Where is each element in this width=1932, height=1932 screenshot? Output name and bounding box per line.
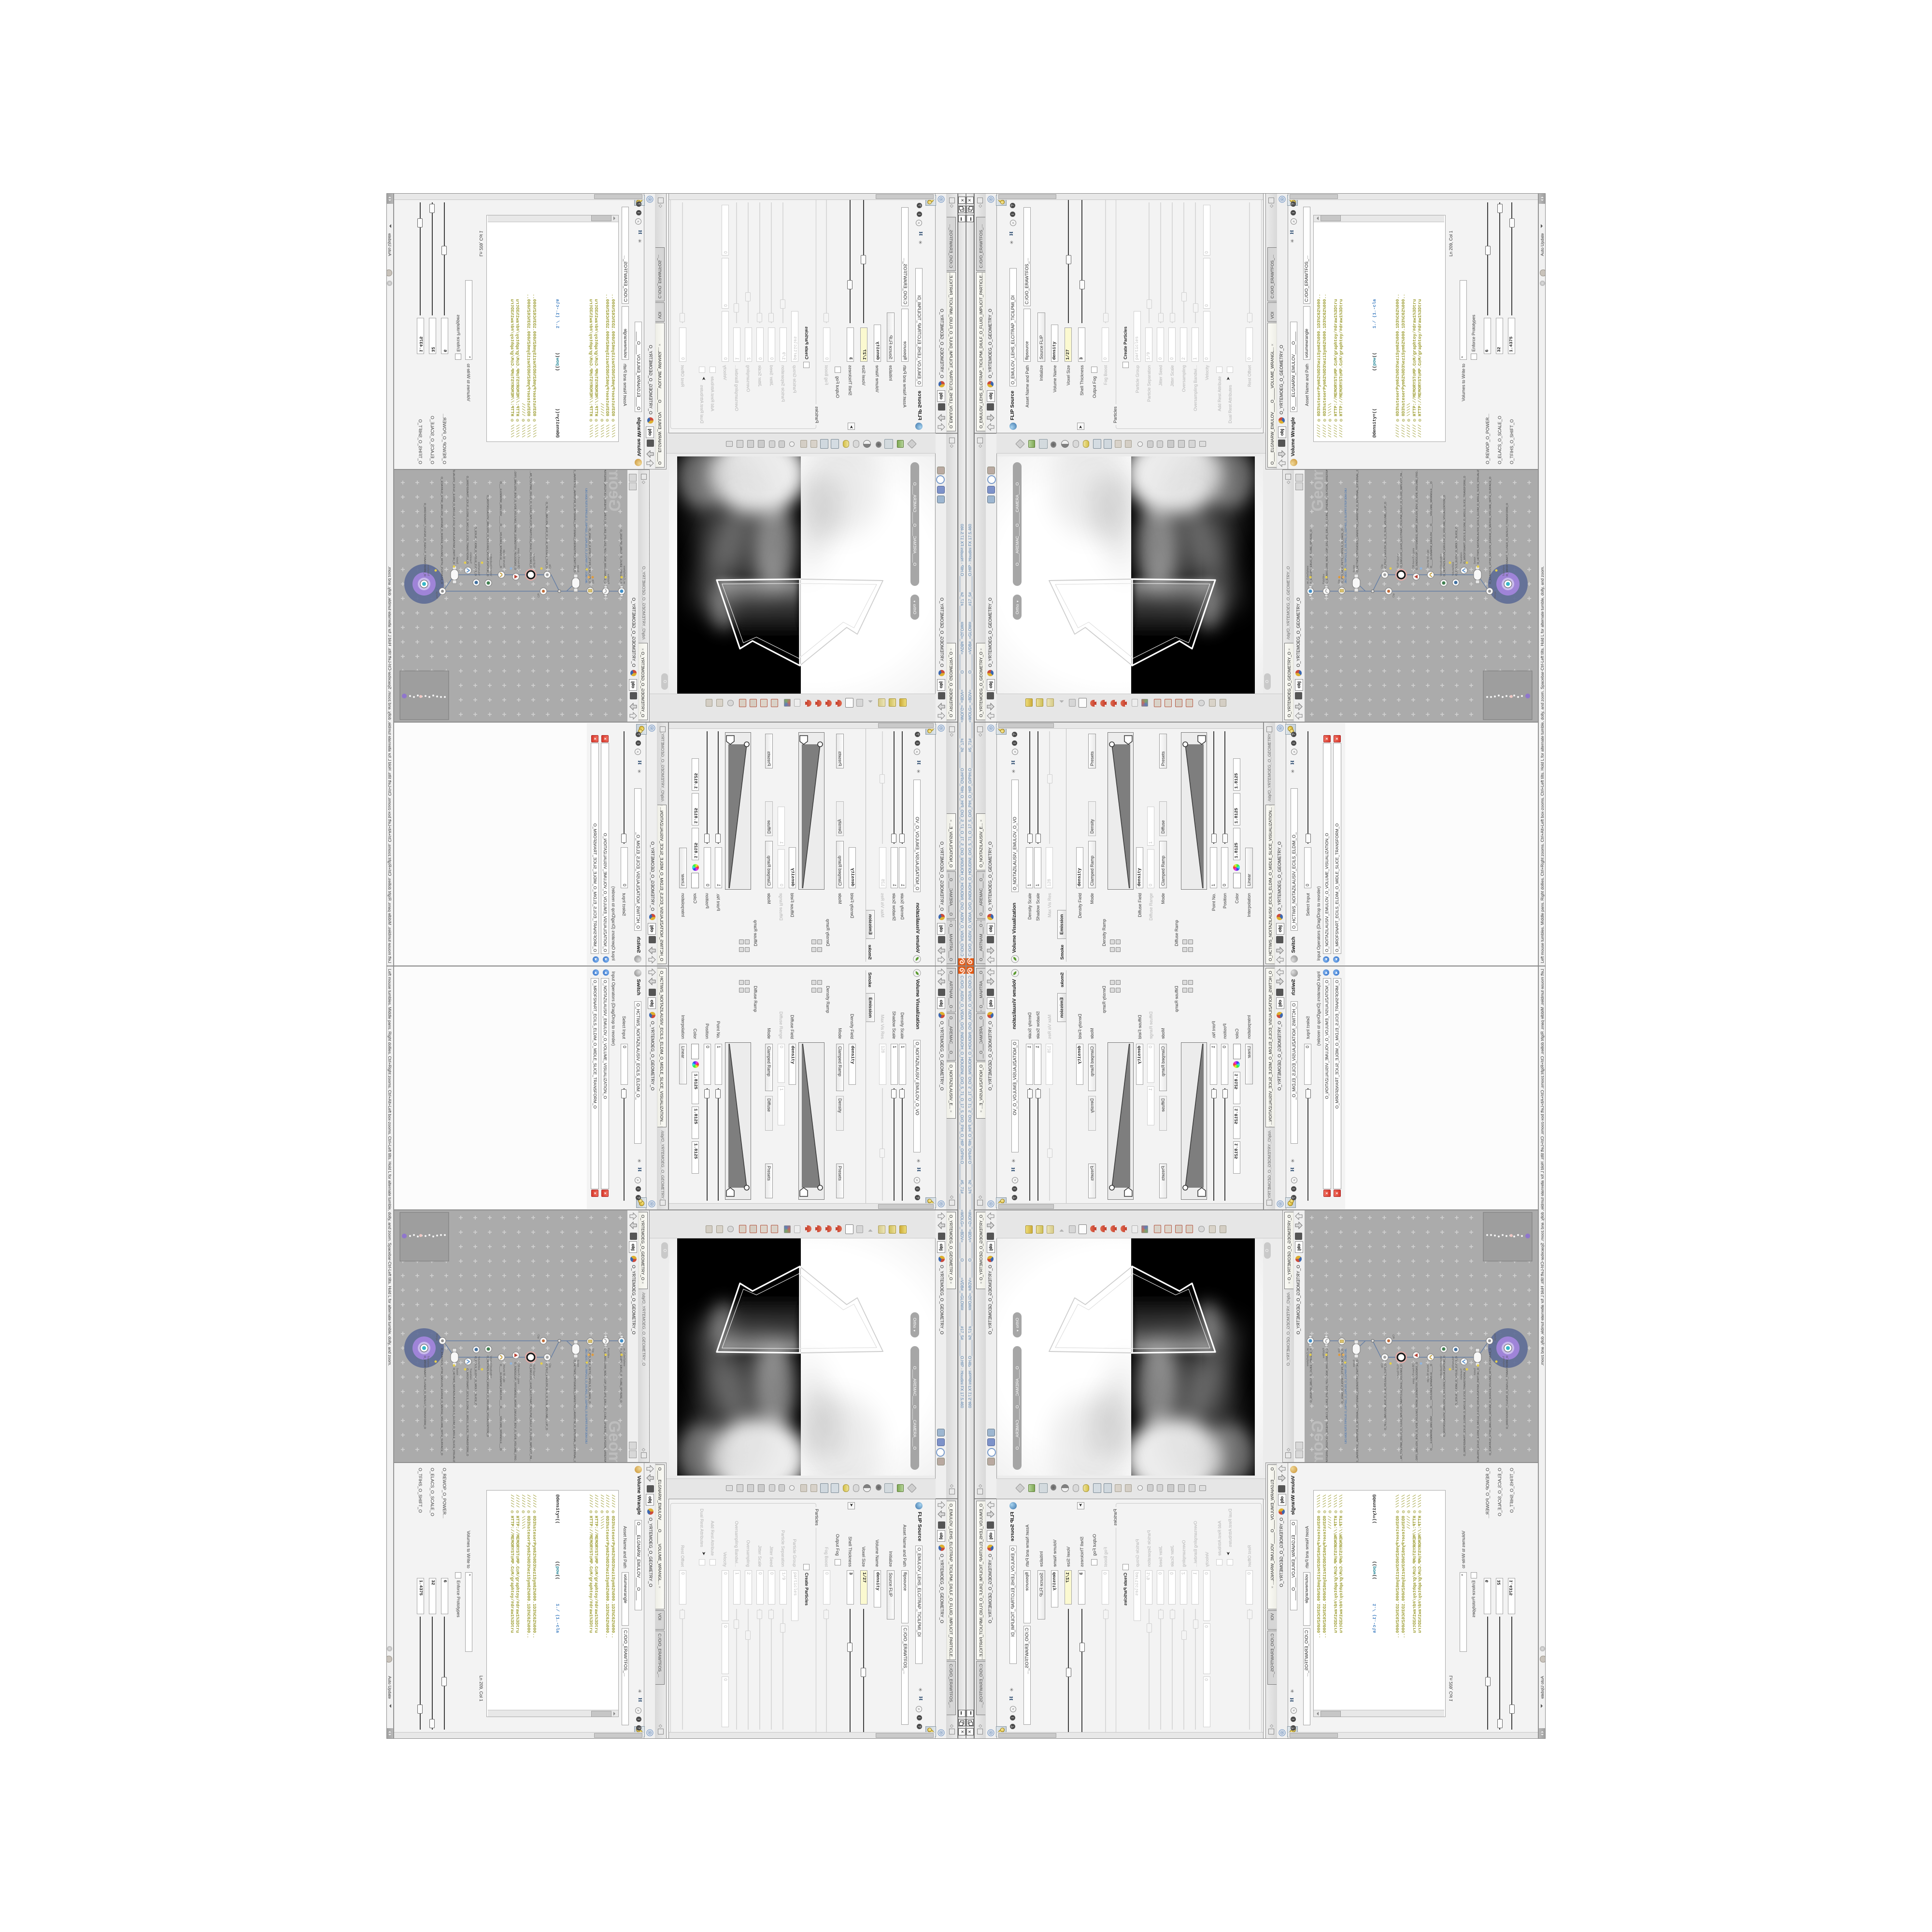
svg-text:an_CubeSphere: an_CubeSphere bbox=[623, 1348, 625, 1366]
svg-text:Volume Wrangle: Volume Wrangle bbox=[1427, 550, 1430, 568]
svg-text:O_EMARFERIW_NOGYLOP_EREHPS_EBU: O_EMARFERIW_NOGYLOP_EREHPS_EBUC_O_CUBE_S… bbox=[603, 470, 606, 584]
svg-text:an_CubeSphere: an_CubeSphere bbox=[1307, 566, 1309, 584]
svg-text:Transform: Transform bbox=[1460, 553, 1463, 564]
svg-text:FLIP Source: FLIP Source bbox=[532, 554, 535, 568]
svg-text:O_MROFSNART_ECILS_ELDIM_O_MIDL: O_MROFSNART_ECILS_ELDIM_O_MIDLE_SLICE_TR… bbox=[1463, 1368, 1466, 1456]
svg-text:FLIP Source: FLIP Source bbox=[1397, 554, 1400, 568]
svg-text:O_MROFSNART_ECILS_ELDIM_O_MIDL: O_MROFSNART_ECILS_ELDIM_O_MIDLE_SLICE_TR… bbox=[466, 1368, 469, 1456]
svg-text:O_MROFSNART_TLUSER_O_RESULT_TR: O_MROFSNART_TLUSER_O_RESULT_TRANSFORM_O bbox=[1506, 1356, 1509, 1429]
svg-text:Transform: Transform bbox=[426, 565, 429, 576]
svg-text:O_HCTIWS_NOITAZILAUSIV_ECILS_E: O_HCTIWS_NOITAZILAUSIV_ECILS_ELDIM_O_MID… bbox=[1477, 1368, 1480, 1462]
svg-text:O_MROFSNART_TLUSER_O_RESULT_TR: O_MROFSNART_TLUSER_O_RESULT_TRANSFORM_O bbox=[423, 1356, 426, 1429]
svg-text:O_MROFSNART_TLUSER_O_RESULT_TR: O_MROFSNART_TLUSER_O_RESULT_TRANSFORM_O bbox=[1506, 503, 1509, 576]
svg-text:O____ELGNARW_EMULOV____O_____V: O____ELGNARW_EMULOV____O_____VOLUME_WRAN… bbox=[499, 481, 502, 568]
svg-text:Merge: Merge bbox=[435, 1334, 438, 1341]
svg-text:O_EMARFERIW_NOGYLOP_EREHPS_EBU: O_EMARFERIW_NOGYLOP_EREHPS_EBUC_O_CUBE_S… bbox=[1326, 470, 1329, 584]
svg-text:O_HCTIWS_YRTEMOEG_LANRETXE_LAN: O_HCTIWS_YRTEMOEG_LANRETXE_LANRETNI_O_IN… bbox=[573, 1360, 576, 1462]
svg-text:O____ELGNARW_EMULOV____O_____V: O____ELGNARW_EMULOV____O_____VOLUME_WRAN… bbox=[1430, 1364, 1433, 1451]
svg-text:an_CubeSphere: an_CubeSphere bbox=[1307, 1348, 1309, 1366]
svg-text:File: File bbox=[591, 580, 594, 583]
svg-text:O_NOITAZILAUSIV_EMULOV_O_VOLUM: O_NOITAZILAUSIV_EMULOV_O_VOLUME_VISUALIZ… bbox=[1443, 495, 1446, 576]
svg-text:O_HCTIWS_YRTEMOEG_LANRETXE_LAN: O_HCTIWS_YRTEMOEG_LANRETXE_LANRETNI_O_IN… bbox=[1356, 1360, 1359, 1462]
svg-text:O_JBO_MD3_PETS_TRPOLS_O_DAOL_O: O_JBO_MD3_PETS_TRPOLS_O_DAOL_O bbox=[1341, 528, 1344, 583]
svg-text:O_EMULOV_LEHS_ELCITRAP_TICILPM: O_EMULOV_LEHS_ELCITRAP_TICILPMI_DIULF_O_… bbox=[1400, 1364, 1403, 1462]
svg-text:O____ELGNARW_EMULOV____O_____V: O____ELGNARW_EMULOV____O_____VOLUME_WRAN… bbox=[1430, 481, 1433, 568]
svg-text:Merge: Merge bbox=[435, 591, 438, 598]
svg-text:Transform: Transform bbox=[1503, 565, 1506, 576]
svg-text:O_EMULOV_LEHS_ELCITRAP_TICILPM: O_EMULOV_LEHS_ELCITRAP_TICILPMI_DIULF_O_… bbox=[1400, 470, 1403, 568]
svg-text:Clip: Clip bbox=[537, 593, 540, 597]
svg-text:O_PILC_EMULOV_BUS_O_SUB_VOLUME: O_PILC_EMULOV_BUS_O_SUB_VOLUME_CLIP_O bbox=[545, 502, 548, 568]
svg-text:O_EMARFERIW_NOGYLOP_EREHPS_EBU: O_EMARFERIW_NOGYLOP_EREHPS_EBUC_O_CUBE_S… bbox=[1326, 1348, 1329, 1462]
svg-text:O_EREHPS_EBUC_O_CUBE_SPHERE_O: O_EREHPS_EBUC_O_CUBE_SPHERE_O bbox=[619, 529, 622, 584]
svg-text:VolumeSlice: VolumeSlice bbox=[477, 1356, 480, 1370]
svg-text:O_PILC_EMULOV_BUS_O_SUB_VOLUME: O_PILC_EMULOV_BUS_O_SUB_VOLUME_CLIP_O bbox=[545, 1364, 548, 1430]
svg-text:Transform: Transform bbox=[1460, 1368, 1463, 1379]
svg-text:Switch: Switch bbox=[455, 557, 458, 564]
svg-text:File: File bbox=[1338, 580, 1341, 583]
svg-text:Switch: Switch bbox=[576, 565, 579, 572]
svg-text:Transform: Transform bbox=[426, 1356, 429, 1367]
svg-text:PolyWire: PolyWire bbox=[607, 574, 610, 584]
svg-text:O_PILC_EMULOV_BUS_O_SUB_VOLUME: O_PILC_EMULOV_BUS_O_SUB_VOLUME_CLIP_O bbox=[1384, 1364, 1387, 1430]
svg-text:O____ELGNARW_EMULOV____O_____V: O____ELGNARW_EMULOV____O_____VOLUME_WRAN… bbox=[499, 1364, 502, 1451]
svg-text:Merge: Merge bbox=[1494, 1334, 1497, 1341]
svg-text:O_SNOGILOP_YRTEMOEG_MORF_EMULO: O_SNOGILOP_YRTEMOEG_MORF_EMULOV_BDV_O_VD… bbox=[513, 470, 516, 570]
svg-text:VolumeVisualization: VolumeVisualization bbox=[1440, 1356, 1443, 1378]
svg-text:VolumeSlice: VolumeSlice bbox=[1452, 1356, 1455, 1370]
svg-text:Switch: Switch bbox=[1474, 1368, 1477, 1375]
svg-text:O_MROFSNART_ECILS_ELDIM_O_MIDL: O_MROFSNART_ECILS_ELDIM_O_MIDLE_SLICE_TR… bbox=[1463, 476, 1466, 564]
svg-text:Clip: Clip bbox=[548, 1364, 551, 1368]
svg-text:VolumeVisualization: VolumeVisualization bbox=[1440, 554, 1443, 576]
svg-text:O_ECAFRUS_HTIW_EMULOV_EGREM_O_: O_ECAFRUS_HTIW_EMULOV_EGREM_O_MERGE_VOLU… bbox=[440, 1348, 443, 1455]
svg-text:Clip: Clip bbox=[1392, 1335, 1395, 1339]
svg-text:Switch: Switch bbox=[1353, 1360, 1356, 1367]
svg-text:O_HCTIWS_YRTEMOEG_LANRETXE_LAN: O_HCTIWS_YRTEMOEG_LANRETXE_LANRETNI_O_IN… bbox=[1356, 470, 1359, 572]
svg-text:Volume Wrangle: Volume Wrangle bbox=[1427, 1364, 1430, 1382]
svg-text:O_HCTIWS_NOITAZILAUSIV_ECILS_E: O_HCTIWS_NOITAZILAUSIV_ECILS_ELDIM_O_MID… bbox=[1477, 470, 1480, 564]
svg-text:O_SNOGILOP_YRTEMOEG_MORF_EMULO: O_SNOGILOP_YRTEMOEG_MORF_EMULOV_BDV_O_VD… bbox=[1416, 1362, 1419, 1462]
svg-text:Clip: Clip bbox=[1392, 593, 1395, 597]
svg-text:O_HCTIWS_NOITAZILAUSIV_ECILS_E: O_HCTIWS_NOITAZILAUSIV_ECILS_ELDIM_O_MID… bbox=[452, 470, 455, 564]
svg-text:O_EREHPS_EBUC_O_CUBE_SPHERE_O: O_EREHPS_EBUC_O_CUBE_SPHERE_O bbox=[1310, 529, 1313, 584]
svg-text:O_MROFSNART_TLUSER_O_RESULT_TR: O_MROFSNART_TLUSER_O_RESULT_TRANSFORM_O bbox=[423, 503, 426, 576]
svg-text:Merge: Merge bbox=[1494, 591, 1497, 598]
svg-text:O_SNOGILOP_YRTEMOEG_MORF_EMULO: O_SNOGILOP_YRTEMOEG_MORF_EMULOV_BDV_O_VD… bbox=[1416, 470, 1419, 570]
svg-text:O_HCTIWS_YRTEMOEG_LANRETXE_LAN: O_HCTIWS_YRTEMOEG_LANRETXE_LANRETNI_O_IN… bbox=[573, 470, 576, 572]
svg-text:Clip: Clip bbox=[548, 564, 551, 568]
svg-text:Geometry: Geometry bbox=[606, 1421, 624, 1462]
svg-text:Switch: Switch bbox=[1474, 557, 1477, 564]
svg-text:O_JBO_MD3_PETS_TRPOLS_O_DAOL_O: O_JBO_MD3_PETS_TRPOLS_O_DAOL_O bbox=[1341, 1349, 1344, 1404]
svg-text:O_ECILS_ELDIM_O_MIDLE_SLICE_O: O_ECILS_ELDIM_O_MIDLE_SLICE_O bbox=[474, 1356, 477, 1406]
svg-text:Clip: Clip bbox=[1381, 1364, 1384, 1368]
svg-text:Clip: Clip bbox=[1381, 564, 1384, 568]
svg-text:FLIP Source: FLIP Source bbox=[532, 1364, 535, 1378]
svg-text:File: File bbox=[1338, 1349, 1341, 1352]
svg-text:O_SNOGILOP_YRTEMOEG_MORF_EMULO: O_SNOGILOP_YRTEMOEG_MORF_EMULOV_BDV_O_VD… bbox=[513, 1362, 516, 1462]
svg-text:O_ECILS_ELDIM_O_MIDLE_SLICE_O: O_ECILS_ELDIM_O_MIDLE_SLICE_O bbox=[1455, 1356, 1458, 1406]
svg-text:Volume Wrangle: Volume Wrangle bbox=[502, 1364, 505, 1382]
svg-text:O_ECILS_ELDIM_O_MIDLE_SLICE_O: O_ECILS_ELDIM_O_MIDLE_SLICE_O bbox=[1455, 526, 1458, 576]
svg-text:Geometry: Geometry bbox=[1308, 470, 1326, 511]
svg-text:O_ECILS_ELDIM_O_MIDLE_SLICE_O: O_ECILS_ELDIM_O_MIDLE_SLICE_O bbox=[474, 526, 477, 576]
svg-text:O_HCTIWS_NOITAZILAUSIV_ECILS_E: O_HCTIWS_NOITAZILAUSIV_ECILS_ELDIM_O_MID… bbox=[452, 1368, 455, 1462]
svg-text:VolumeSlice: VolumeSlice bbox=[477, 562, 480, 576]
svg-text:O_EREHPS_EBUC_O_CUBE_SPHERE_O: O_EREHPS_EBUC_O_CUBE_SPHERE_O bbox=[619, 1348, 622, 1403]
svg-text:FLIP Source: FLIP Source bbox=[1397, 1364, 1400, 1378]
svg-text:an_CubeSphere: an_CubeSphere bbox=[623, 566, 625, 584]
svg-text:Transform: Transform bbox=[469, 1368, 472, 1379]
svg-text:O_EMARFERIW_NOGYLOP_EREHPS_EBU: O_EMARFERIW_NOGYLOP_EREHPS_EBUC_O_CUBE_S… bbox=[603, 1348, 606, 1462]
svg-text:O_EREHPS_EBUC_O_CUBE_SPHERE_O: O_EREHPS_EBUC_O_CUBE_SPHERE_O bbox=[1310, 1348, 1313, 1403]
svg-text:Geometry: Geometry bbox=[1308, 1421, 1326, 1462]
svg-text:VolumeSlice: VolumeSlice bbox=[1452, 562, 1455, 576]
svg-text:O_JBO_MD3_PETS_TRPOLS_O_DAOL_O: O_JBO_MD3_PETS_TRPOLS_O_DAOL_O bbox=[588, 1349, 591, 1404]
svg-text:O_PILC_EMULOV_BUS_O_SUB_VOLUME: O_PILC_EMULOV_BUS_O_SUB_VOLUME_CLIP_O bbox=[1384, 502, 1387, 568]
svg-text:PolyWire: PolyWire bbox=[607, 1348, 610, 1358]
svg-text:Clip: Clip bbox=[537, 1335, 540, 1339]
svg-text:O_NOITAZILAUSIV_EMULOV_O_VOLUM: O_NOITAZILAUSIV_EMULOV_O_VOLUME_VISUALIZ… bbox=[1443, 1356, 1446, 1437]
svg-text:Volume Wrangle: Volume Wrangle bbox=[502, 550, 505, 568]
svg-text:PolyWire: PolyWire bbox=[1322, 1348, 1325, 1358]
svg-text:O_ECAFRUS_HTIW_EMULOV_EGREM_O_: O_ECAFRUS_HTIW_EMULOV_EGREM_O_MERGE_VOLU… bbox=[1489, 477, 1492, 584]
svg-text:File: File bbox=[591, 1349, 594, 1352]
svg-text:Switch: Switch bbox=[455, 1368, 458, 1375]
svg-text:O_ECAFRUS_HTIW_EMULOV_EGREM_O_: O_ECAFRUS_HTIW_EMULOV_EGREM_O_MERGE_VOLU… bbox=[440, 477, 443, 584]
svg-text:O_NOITAZILAUSIV_EMULOV_O_VOLUM: O_NOITAZILAUSIV_EMULOV_O_VOLUME_VISUALIZ… bbox=[486, 1356, 489, 1437]
svg-text:O_ECAFRUS_HTIW_EMULOV_EGREM_O_: O_ECAFRUS_HTIW_EMULOV_EGREM_O_MERGE_VOLU… bbox=[1489, 1348, 1492, 1455]
svg-text:O_MROFSNART_ECILS_ELDIM_O_MIDL: O_MROFSNART_ECILS_ELDIM_O_MIDLE_SLICE_TR… bbox=[466, 476, 469, 564]
svg-text:VDB from Polygons: VDB from Polygons bbox=[1412, 548, 1415, 570]
svg-text:Switch: Switch bbox=[1353, 565, 1356, 572]
svg-text:VDB from Polygons: VDB from Polygons bbox=[517, 1362, 520, 1384]
svg-text:O_NOITAZILAUSIV_EMULOV_O_VOLUM: O_NOITAZILAUSIV_EMULOV_O_VOLUME_VISUALIZ… bbox=[486, 495, 489, 576]
svg-text:O_JBO_MD3_PETS_TRPOLS_O_DAOL_O: O_JBO_MD3_PETS_TRPOLS_O_DAOL_O bbox=[588, 528, 591, 583]
svg-text:O_EMULOV_LEHS_ELCITRAP_TICILPM: O_EMULOV_LEHS_ELCITRAP_TICILPMI_DIULF_O_… bbox=[529, 1364, 532, 1462]
svg-text:Geometry: Geometry bbox=[606, 470, 624, 511]
svg-text:VolumeVisualization: VolumeVisualization bbox=[489, 554, 492, 576]
svg-text:VolumeVisualization: VolumeVisualization bbox=[489, 1356, 492, 1378]
svg-text:VDB from Polygons: VDB from Polygons bbox=[517, 548, 520, 570]
svg-text:Transform: Transform bbox=[469, 553, 472, 564]
svg-text:Transform: Transform bbox=[1503, 1356, 1506, 1367]
svg-text:Switch: Switch bbox=[576, 1360, 579, 1367]
svg-text:PolyWire: PolyWire bbox=[1322, 574, 1325, 584]
svg-text:VDB from Polygons: VDB from Polygons bbox=[1412, 1362, 1415, 1384]
svg-text:O_EMULOV_LEHS_ELCITRAP_TICILPM: O_EMULOV_LEHS_ELCITRAP_TICILPMI_DIULF_O_… bbox=[529, 470, 532, 568]
